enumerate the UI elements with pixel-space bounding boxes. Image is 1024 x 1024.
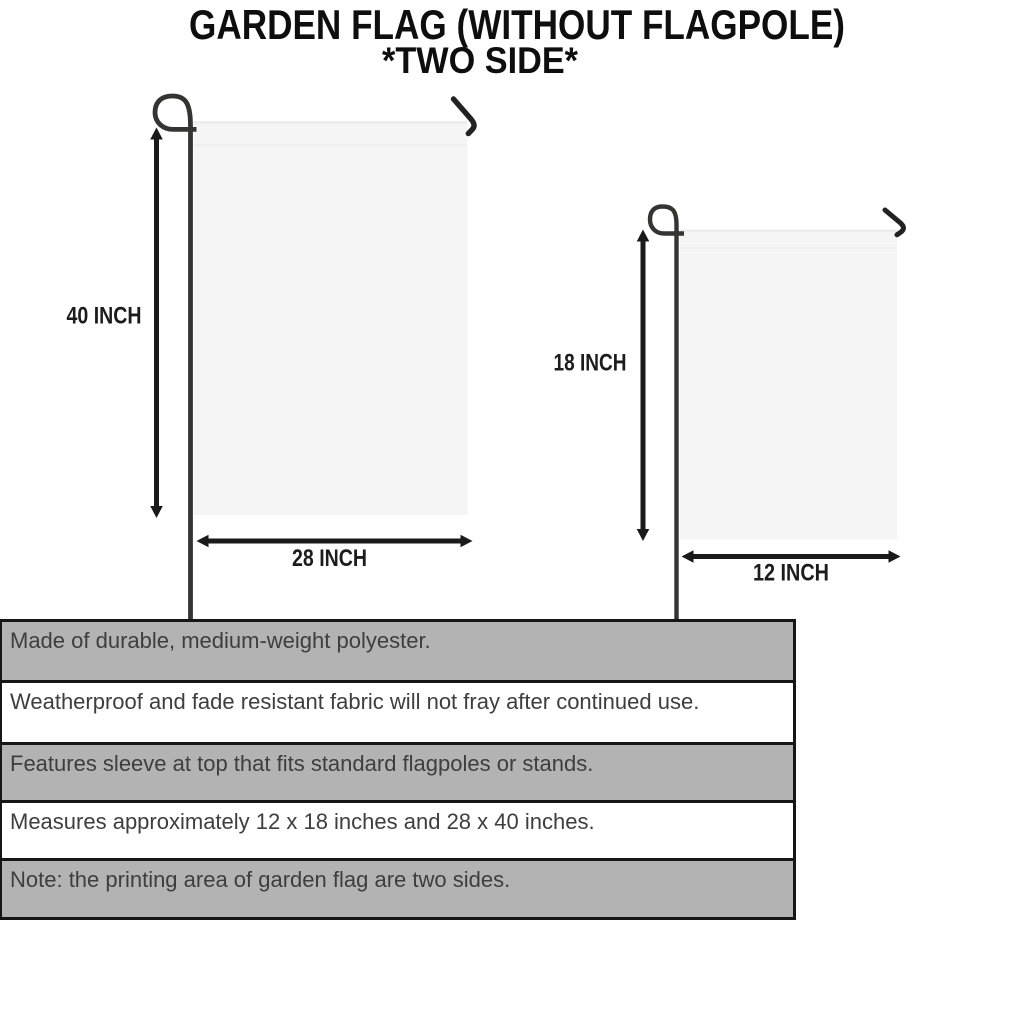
svg-text:*TWO SIDE*: *TWO SIDE* bbox=[382, 40, 579, 81]
svg-text:28 INCH: 28 INCH bbox=[292, 545, 367, 572]
svg-text:40 INCH: 40 INCH bbox=[67, 303, 142, 330]
svg-text:18 INCH: 18 INCH bbox=[554, 350, 627, 377]
svg-text:12 INCH: 12 INCH bbox=[753, 560, 829, 587]
